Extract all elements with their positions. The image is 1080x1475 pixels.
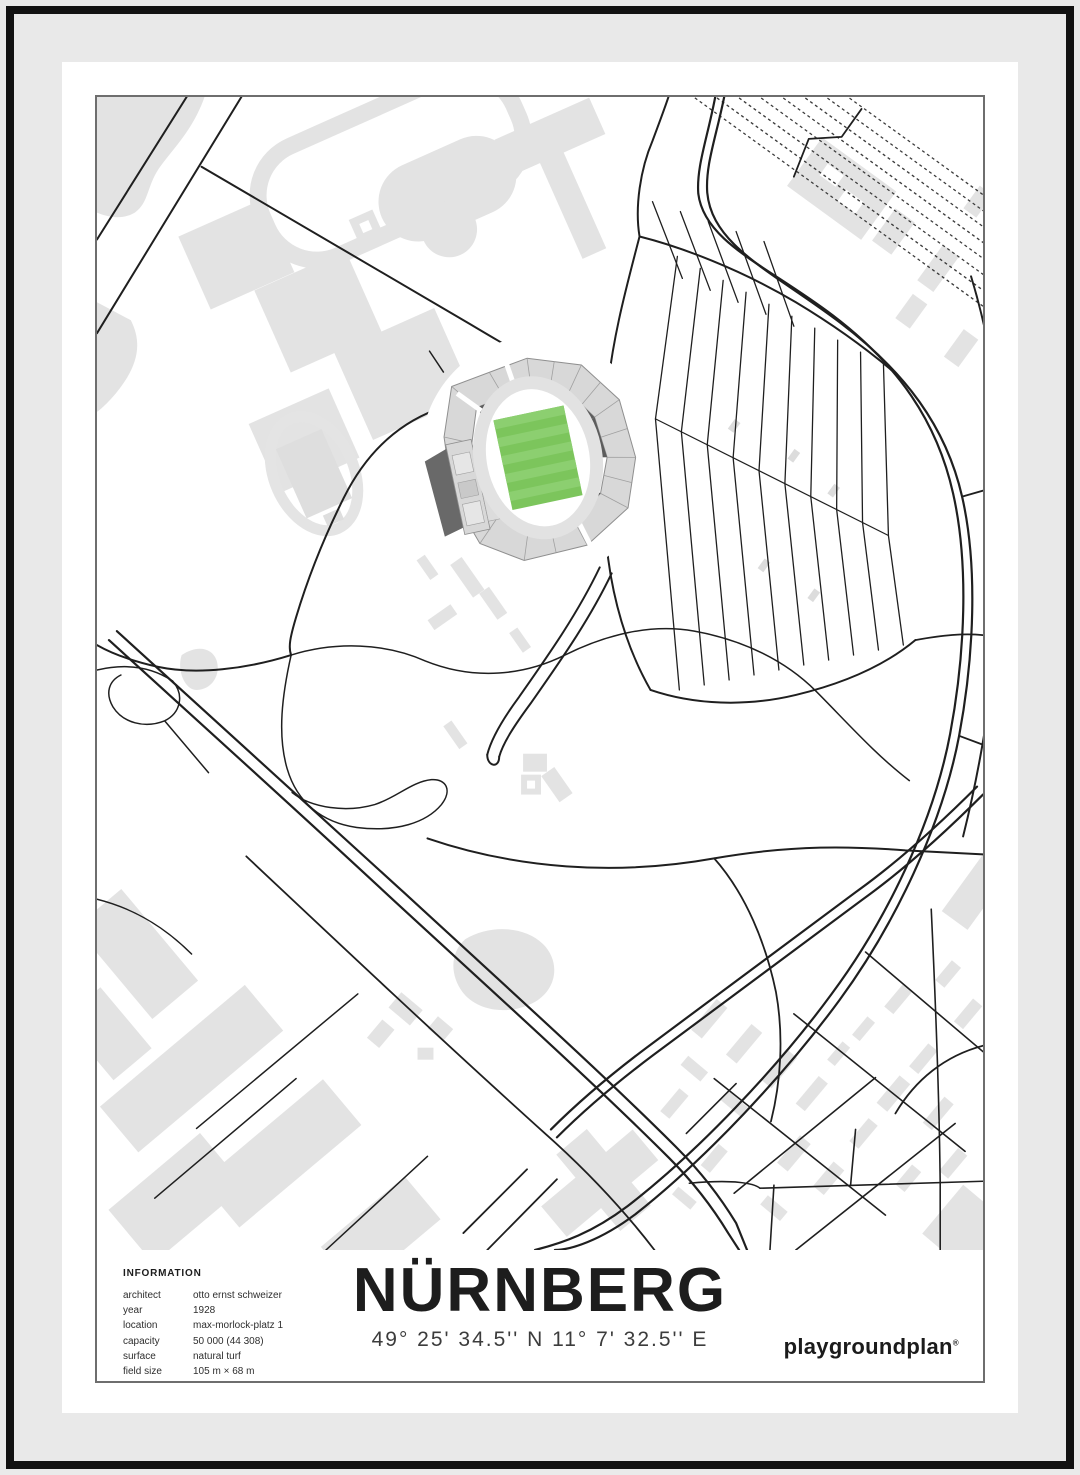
brand-logo: playgroundplan® (784, 1334, 959, 1360)
registered-mark: ® (953, 1339, 959, 1348)
buildings-layer (97, 97, 983, 1250)
map-canvas (97, 97, 983, 1250)
poster-paper: INFORMATION architectotto ernst schweize… (62, 62, 1018, 1413)
print-border: INFORMATION architectotto ernst schweize… (95, 95, 985, 1383)
stadium-street-map (97, 97, 983, 1250)
poster-scene: INFORMATION architectotto ernst schweize… (0, 0, 1080, 1475)
caption-area: INFORMATION architectotto ernst schweize… (97, 1250, 983, 1381)
info-row-field-size: field size105 m × 68 m (123, 1364, 283, 1379)
city-title: NÜRNBERG (97, 1260, 983, 1322)
allotment-gardens (652, 202, 903, 690)
